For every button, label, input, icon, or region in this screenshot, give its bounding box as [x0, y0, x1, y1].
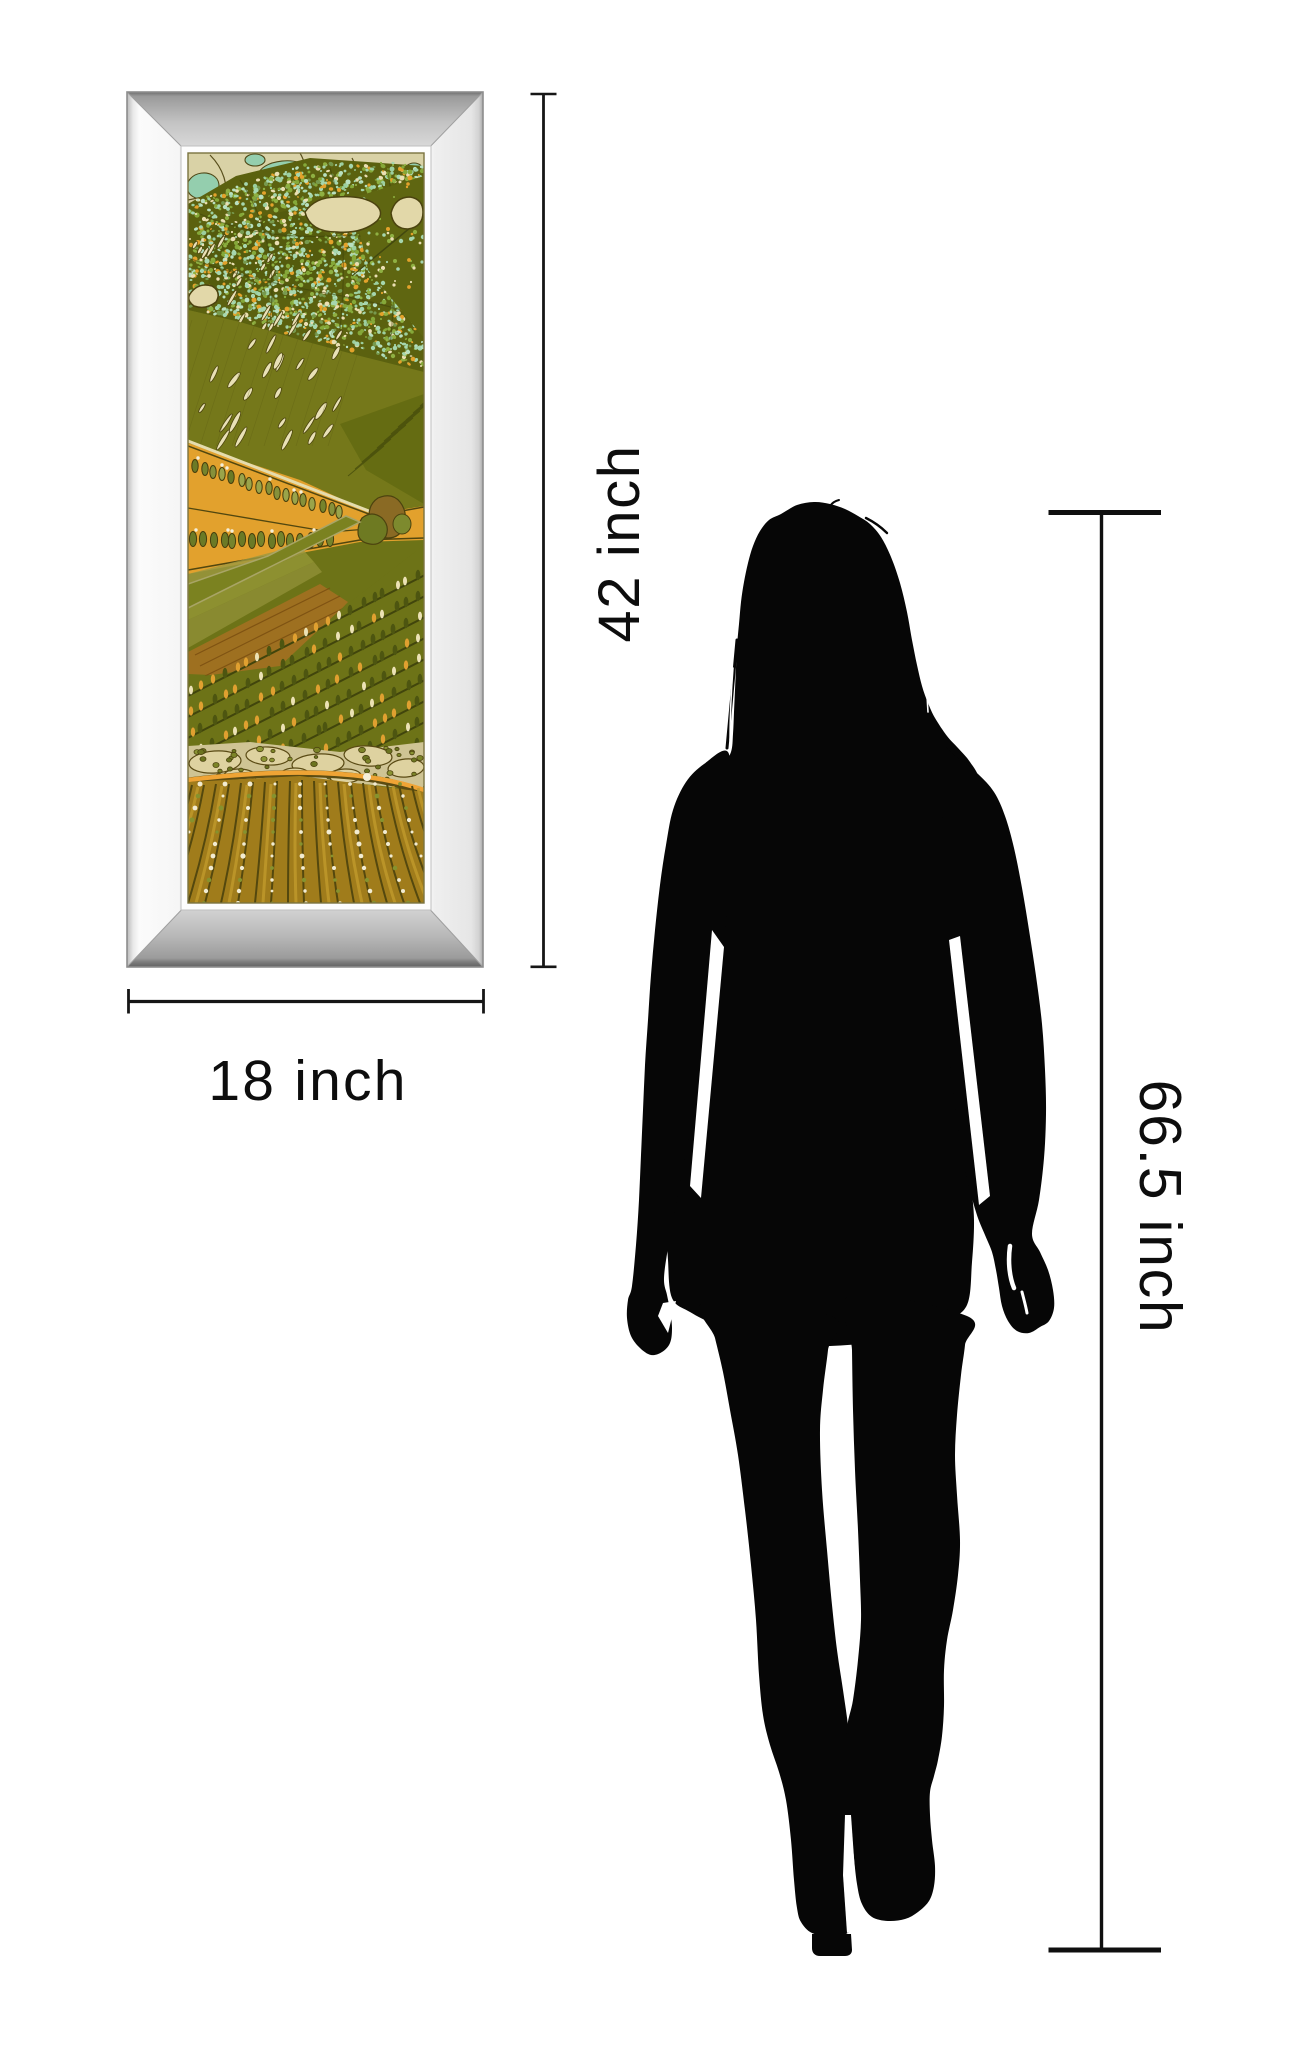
- svg-text:66.5 inch: 66.5 inch: [1127, 1080, 1193, 1335]
- svg-text:42 inch: 42 inch: [587, 444, 652, 642]
- svg-text:18 inch: 18 inch: [208, 1049, 407, 1113]
